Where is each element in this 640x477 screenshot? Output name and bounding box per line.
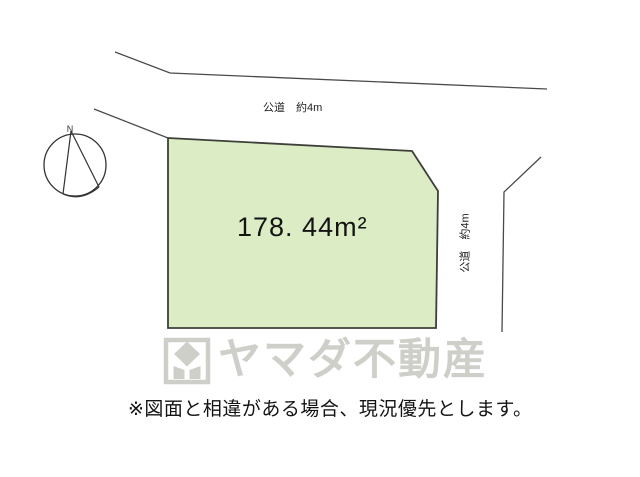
disclaimer-text: ※図面と相違がある場合、現況優先とします。: [128, 394, 533, 421]
top-road-line: [115, 52, 547, 89]
brand-watermark: ヤマダ不動産: [163, 336, 488, 385]
compass-north-letter: N: [67, 124, 74, 134]
brand-name: ヤマダ不動産: [218, 336, 488, 385]
land-plot-diagram: N 公道 約4m 公道 約4m 178. 44m² ヤマダ不動産 ※図面と相違が…: [0, 0, 640, 477]
left-road-line: [94, 109, 168, 138]
parcel-area-label: 178. 44m²: [237, 212, 368, 243]
brand-logo-icon: [163, 337, 211, 385]
north-compass-icon: N: [44, 124, 106, 197]
right-road-label: 公道 約4m: [460, 213, 473, 272]
right-road-line: [502, 157, 541, 332]
top-road-label: 公道 約4m: [263, 102, 322, 115]
